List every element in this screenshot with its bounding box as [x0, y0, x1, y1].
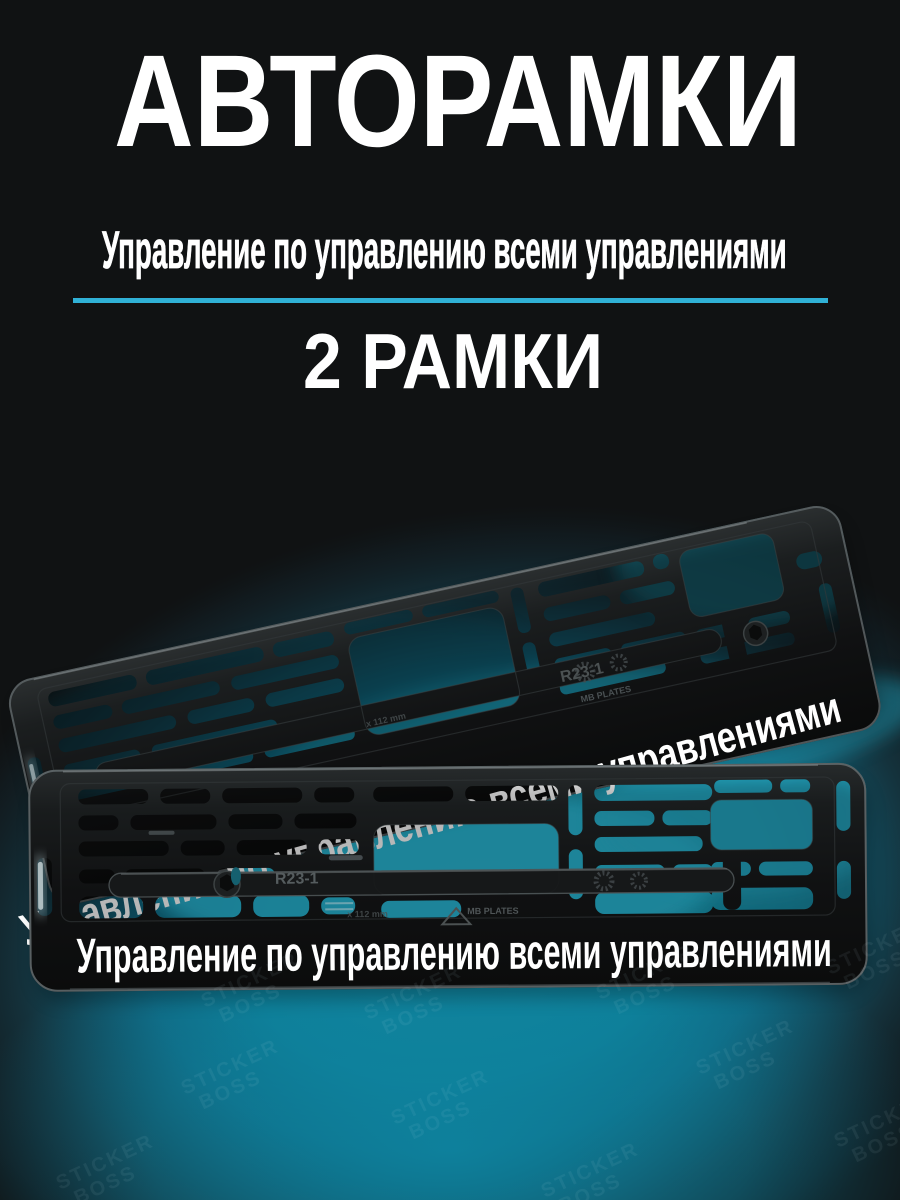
svg-text:x 112 mm: x 112 mm [347, 909, 388, 919]
svg-text:АВТОРАМКИ: АВТОРАМКИ [114, 27, 802, 174]
svg-text:MB PLATES: MB PLATES [467, 906, 518, 916]
svg-text:R23-1: R23-1 [275, 870, 319, 887]
svg-text:Управление по управлению всеми: Управление по управлению всеми управлени… [102, 221, 787, 280]
svg-text:2 РАМКИ: 2 РАМКИ [303, 317, 603, 405]
